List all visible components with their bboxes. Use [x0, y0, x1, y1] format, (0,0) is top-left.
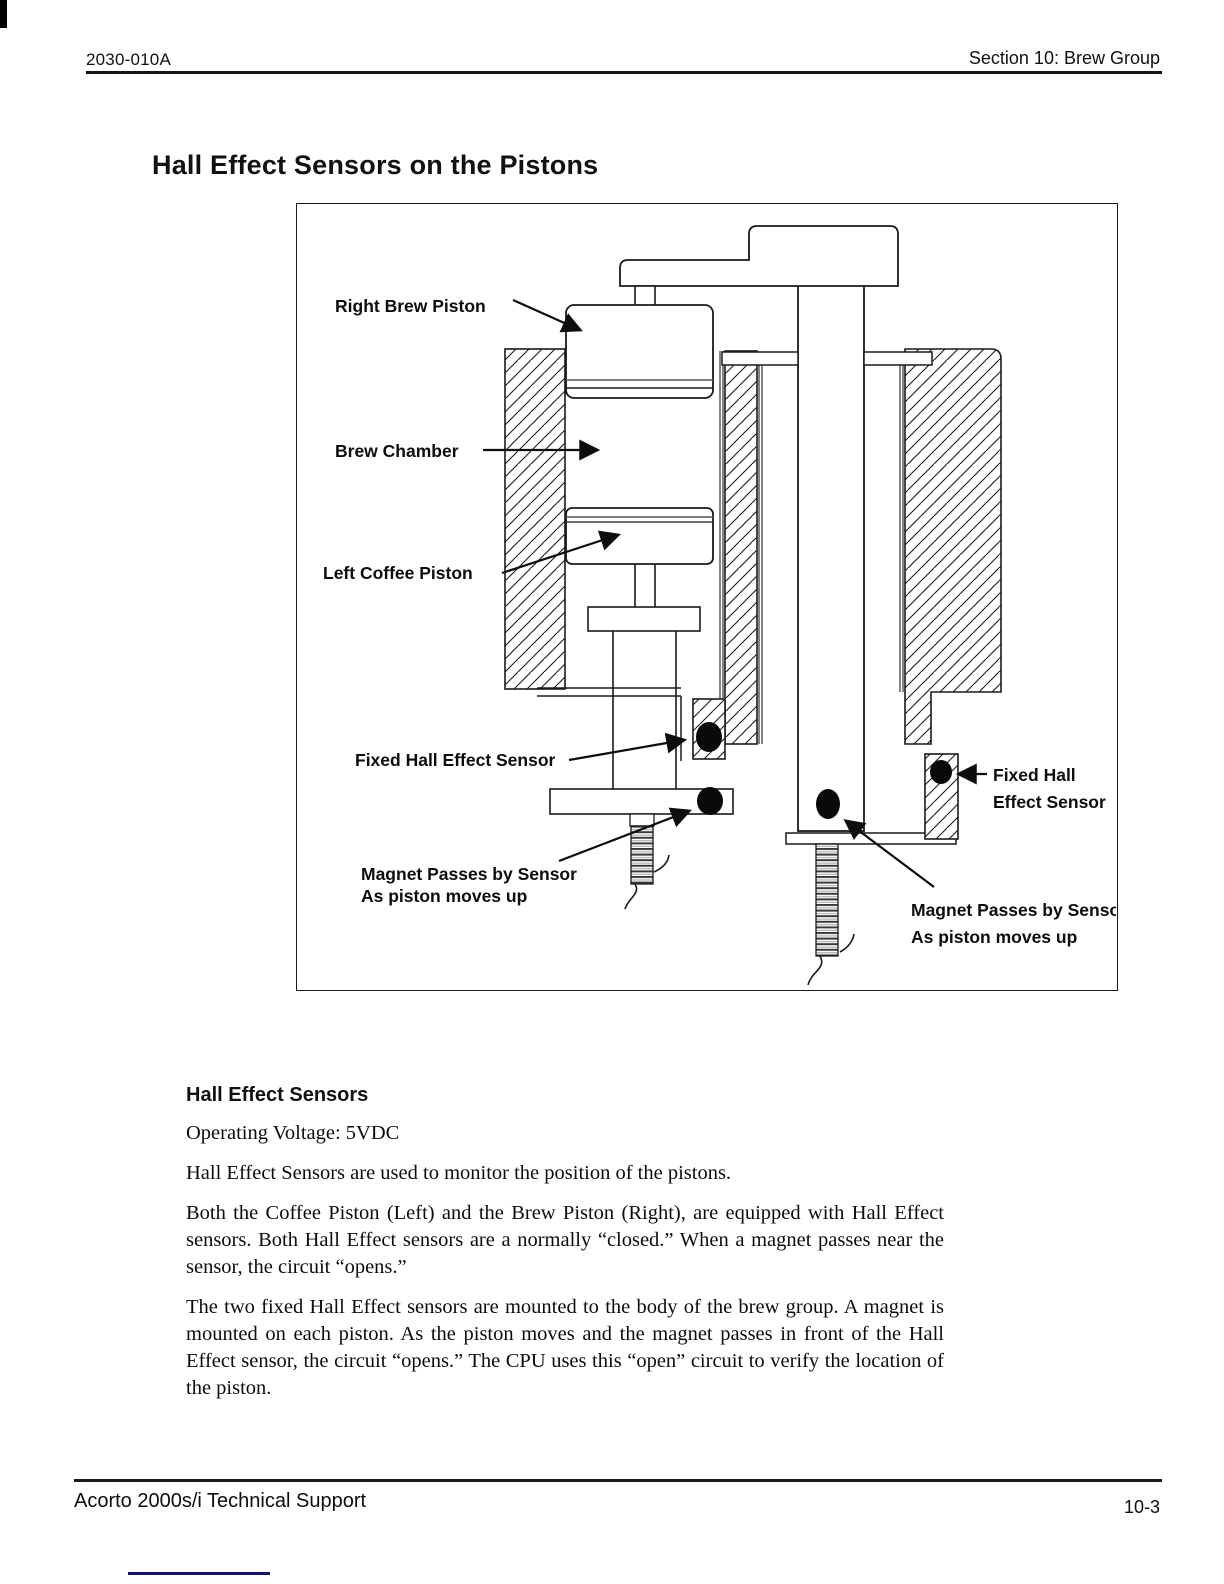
magnet-dot-left-plate: [697, 787, 723, 815]
piston-rod: [588, 564, 700, 789]
page-number: 10-3: [1124, 1497, 1160, 1518]
left-coffee-piston: [566, 508, 713, 564]
paragraph-2: Both the Coffee Piston (Left) and the Br…: [186, 1200, 944, 1281]
left-step-plate: [537, 688, 681, 761]
doc-number: 2030-010A: [86, 50, 171, 73]
label-magnet-left-line2: As piston moves up: [361, 886, 527, 906]
piston-stem: [635, 286, 655, 306]
operating-voltage: Operating Voltage: 5VDC: [186, 1120, 944, 1147]
label-magnet-right-line2: As piston moves up: [911, 927, 1077, 947]
paragraph-1: Hall Effect Sensors are used to monitor …: [186, 1160, 944, 1187]
label-left-coffee-piston: Left Coffee Piston: [323, 563, 473, 583]
right-cylinder-wall: [905, 349, 1001, 744]
magnet-dot-shaft: [816, 789, 840, 819]
label-magnet-right-line1: Magnet Passes by Sensor: [911, 900, 1116, 920]
label-fixed-hall-right-line1: Fixed Hall: [993, 765, 1076, 785]
footer-rule: [74, 1479, 1162, 1482]
right-brew-piston: [566, 305, 713, 398]
leader-fixed-hall-left: [569, 740, 684, 760]
scan-artifact: [0, 0, 7, 28]
leader-magnet-left: [559, 811, 689, 861]
header-rule: [86, 71, 1162, 74]
magnet-dot-right-sensor: [930, 760, 952, 784]
left-cylinder-wall: [505, 349, 565, 689]
magnet-dot-left-sensor: [696, 722, 722, 752]
drive-shaft: [798, 284, 864, 831]
drive-cap: [620, 226, 898, 286]
label-fixed-hall-left: Fixed Hall Effect Sensor: [355, 750, 556, 770]
label-right-brew-piston: Right Brew Piston: [335, 296, 486, 316]
label-magnet-left-line1: Magnet Passes by Sensor: [361, 864, 577, 884]
diagram-figure: Right Brew Piston Brew Chamber Left Coff…: [296, 203, 1118, 991]
accent-underline: [128, 1572, 270, 1575]
manual-page: 2030-010A Section 10: Brew Group Hall Ef…: [0, 0, 1224, 1584]
page-title: Hall Effect Sensors on the Pistons: [152, 150, 598, 181]
center-wall: [725, 351, 757, 744]
rod-flange: [588, 607, 700, 631]
body-section: Hall Effect Sensors Operating Voltage: 5…: [186, 1084, 944, 1415]
section-label: Section 10: Brew Group: [969, 48, 1160, 72]
footer-left-text: Acorto 2000s/i Technical Support: [74, 1490, 366, 1513]
label-fixed-hall-right-line2: Effect Sensor: [993, 792, 1106, 812]
label-brew-chamber: Brew Chamber: [335, 441, 459, 461]
brew-group-diagram: Right Brew Piston Brew Chamber Left Coff…: [297, 204, 1116, 989]
right-screw: [808, 844, 854, 985]
body-heading: Hall Effect Sensors: [186, 1084, 944, 1107]
leader-magnet-right: [846, 821, 934, 887]
paragraph-3: The two fixed Hall Effect sensors are mo…: [186, 1294, 944, 1402]
